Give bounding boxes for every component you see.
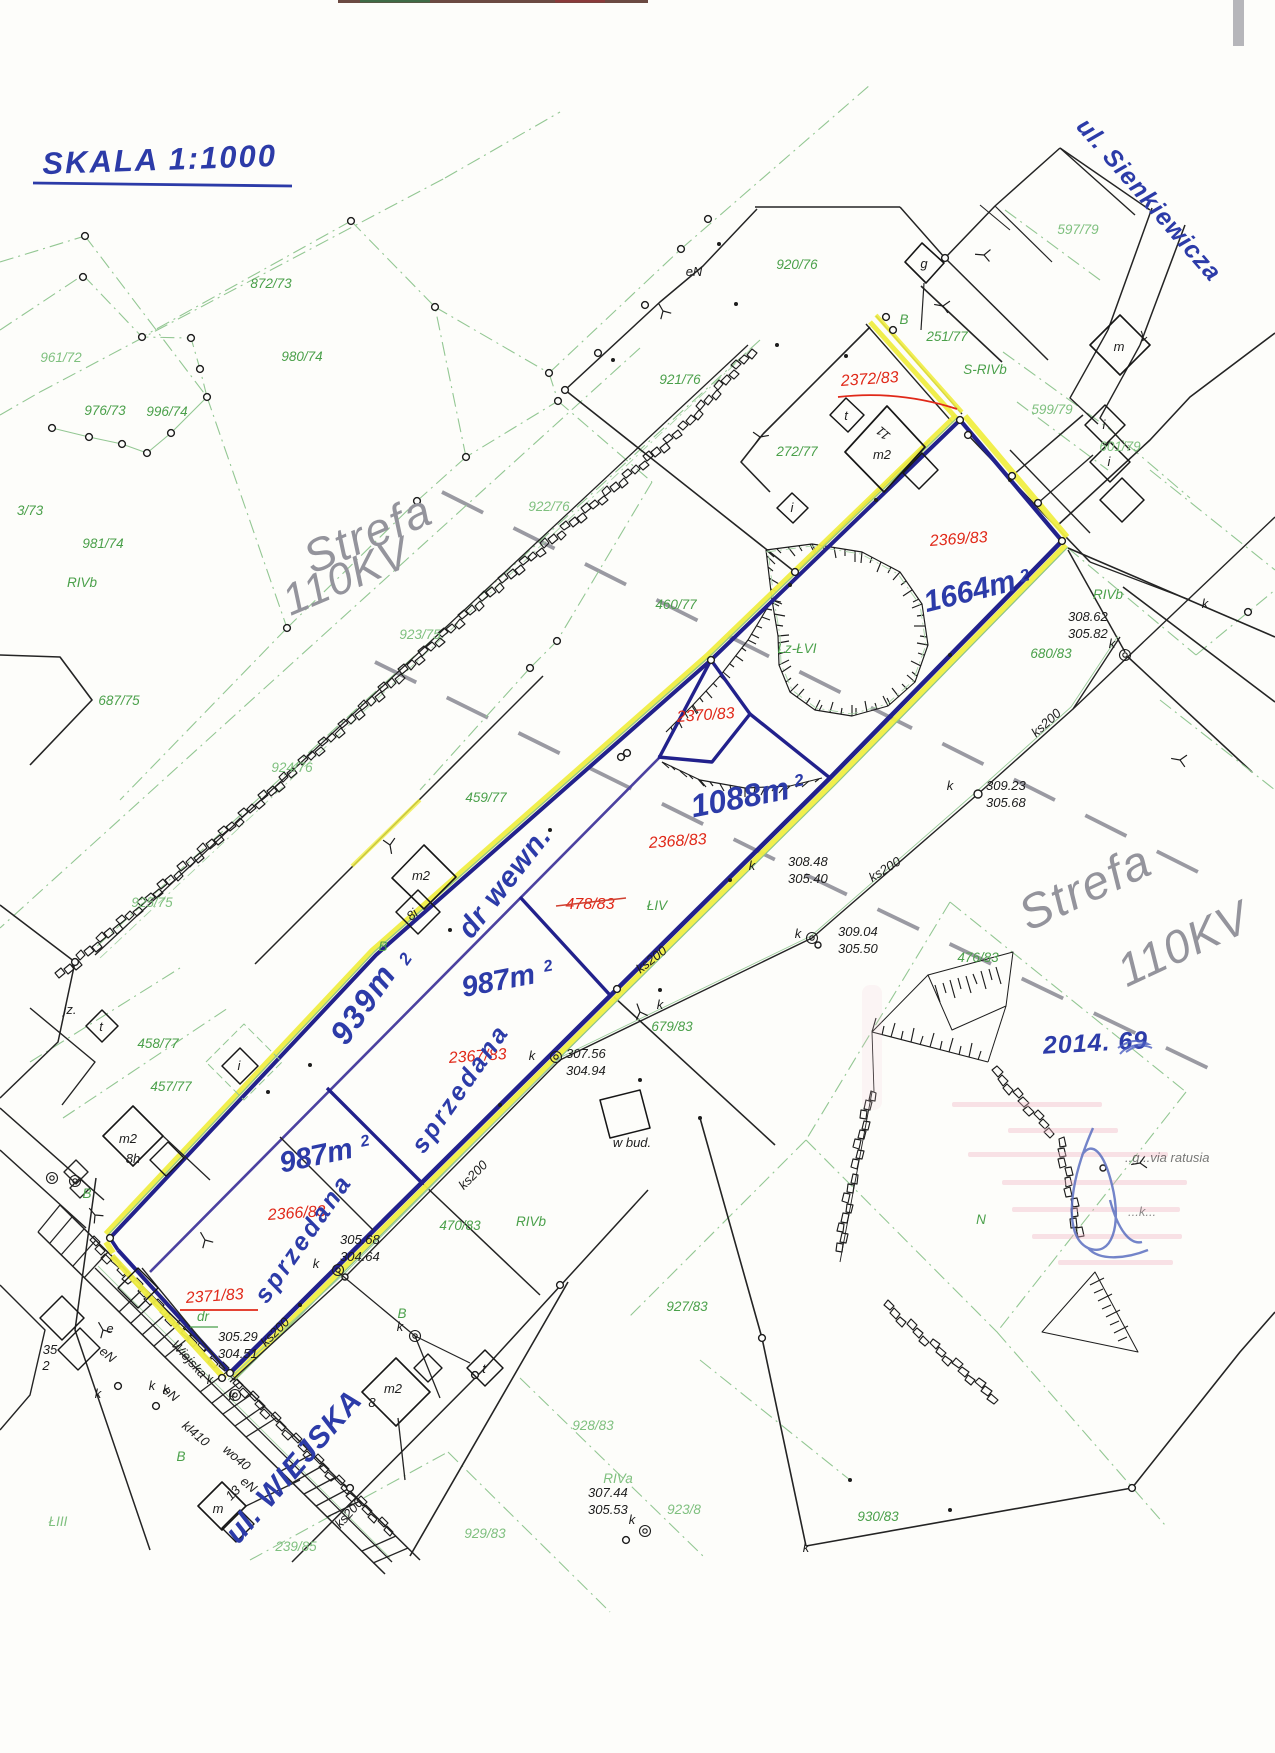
svg-text:305.68: 305.68	[986, 795, 1027, 810]
svg-text:S-RIVb: S-RIVb	[963, 362, 1007, 377]
svg-text:ŁIV: ŁIV	[647, 898, 669, 913]
svg-text:Lz-ŁVI: Lz-ŁVI	[777, 641, 816, 656]
svg-text:304.94: 304.94	[566, 1063, 606, 1078]
svg-text:305.40: 305.40	[788, 871, 829, 886]
svg-text:961/72: 961/72	[40, 350, 82, 365]
svg-text:308.48: 308.48	[788, 854, 829, 869]
svg-text:309.23: 309.23	[986, 778, 1027, 793]
svg-text:8h: 8h	[126, 1151, 140, 1166]
svg-text:m2: m2	[384, 1381, 403, 1396]
svg-text:RIVa: RIVa	[603, 1471, 633, 1486]
svg-text:930/83: 930/83	[857, 1509, 899, 1524]
svg-text:460/77: 460/77	[655, 597, 697, 612]
svg-text:239/85: 239/85	[274, 1539, 317, 1554]
svg-text:m2: m2	[873, 447, 892, 462]
svg-text:RIVb: RIVb	[516, 1214, 547, 1229]
svg-text:m2: m2	[119, 1131, 138, 1146]
svg-text:..g...via ratusia: ..g...via ratusia	[1125, 1150, 1210, 1165]
svg-text:B: B	[899, 312, 908, 327]
svg-text:8: 8	[368, 1395, 376, 1410]
svg-text:ŁIII: ŁIII	[49, 1514, 68, 1529]
svg-text:...k...: ...k...	[1128, 1204, 1156, 1219]
svg-text:924/76: 924/76	[271, 760, 313, 775]
svg-text:m: m	[213, 1501, 224, 1516]
svg-text:679/83: 679/83	[651, 1019, 693, 1034]
svg-text:e: e	[106, 1321, 113, 1336]
svg-text:981/74: 981/74	[82, 536, 123, 551]
svg-text:980/74: 980/74	[281, 349, 322, 364]
svg-text:3/73: 3/73	[17, 503, 44, 518]
svg-text:eN: eN	[686, 264, 703, 279]
svg-text:925/75: 925/75	[131, 895, 173, 910]
svg-text:457/77: 457/77	[150, 1079, 192, 1094]
svg-text:599/79: 599/79	[1031, 402, 1073, 417]
svg-text:476/83: 476/83	[957, 950, 999, 965]
svg-text:458/77: 458/77	[137, 1036, 179, 1051]
svg-text:922/76: 922/76	[528, 499, 570, 514]
svg-text:305.50: 305.50	[838, 941, 879, 956]
svg-text:35: 35	[43, 1342, 58, 1357]
svg-text:305.29: 305.29	[218, 1329, 258, 1344]
svg-text:687/75: 687/75	[98, 693, 140, 708]
svg-text:923/75: 923/75	[399, 627, 441, 642]
svg-text:597/79: 597/79	[1057, 222, 1099, 237]
svg-text:304.51: 304.51	[218, 1346, 258, 1361]
svg-text:927/83: 927/83	[666, 1299, 708, 1314]
svg-text:2: 2	[41, 1358, 50, 1373]
svg-text:601/79: 601/79	[1099, 439, 1141, 454]
svg-text:470/83: 470/83	[439, 1218, 481, 1233]
svg-text:307.44: 307.44	[588, 1485, 628, 1500]
svg-text:272/77: 272/77	[775, 444, 818, 459]
svg-text:dr: dr	[197, 1309, 210, 1324]
svg-text:304.64: 304.64	[340, 1249, 380, 1264]
svg-text:307.56: 307.56	[566, 1046, 607, 1061]
svg-text:921/76: 921/76	[659, 372, 701, 387]
svg-text:g: g	[920, 256, 928, 271]
svg-text:B: B	[397, 1306, 406, 1321]
svg-text:929/83: 929/83	[464, 1526, 506, 1541]
svg-text:N: N	[976, 1212, 986, 1227]
svg-text:928/83: 928/83	[572, 1418, 614, 1433]
svg-text:m: m	[1114, 339, 1125, 354]
svg-text:2014. 69: 2014. 69	[1041, 1026, 1149, 1060]
svg-text:459/77: 459/77	[465, 790, 507, 805]
svg-text:680/83: 680/83	[1030, 646, 1072, 661]
svg-text:B: B	[176, 1449, 185, 1464]
svg-text:996/74: 996/74	[146, 404, 187, 419]
svg-text:jz.: jz.	[62, 1002, 77, 1017]
svg-text:251/77: 251/77	[925, 329, 968, 344]
svg-text:305.68: 305.68	[340, 1232, 381, 1247]
svg-text:RIVb: RIVb	[67, 575, 98, 590]
svg-text:923/8: 923/8	[667, 1502, 701, 1517]
svg-text:308.62: 308.62	[1068, 609, 1109, 624]
svg-text:B: B	[82, 1186, 91, 1201]
svg-text:305.82: 305.82	[1068, 626, 1109, 641]
svg-text:B: B	[378, 939, 387, 954]
svg-text:976/73: 976/73	[84, 403, 126, 418]
svg-text:305.53: 305.53	[588, 1502, 629, 1517]
svg-text:920/76: 920/76	[776, 257, 818, 272]
svg-text:RIVb: RIVb	[1093, 587, 1124, 602]
svg-text:w bud.: w bud.	[613, 1135, 651, 1150]
svg-text:309.04: 309.04	[838, 924, 878, 939]
svg-text:872/73: 872/73	[250, 276, 292, 291]
svg-text:m2: m2	[412, 868, 431, 883]
